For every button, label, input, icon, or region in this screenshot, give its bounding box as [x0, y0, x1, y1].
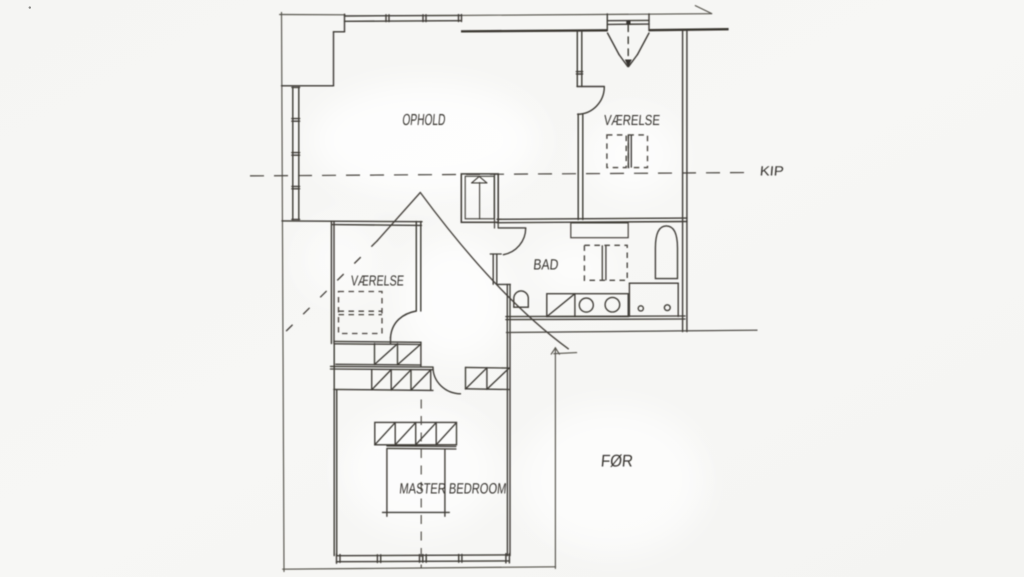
- svg-text:BAD: BAD: [533, 257, 560, 274]
- svg-text:OPHOLD: OPHOLD: [402, 111, 447, 129]
- svg-text:VÆRELSE: VÆRELSE: [350, 274, 405, 290]
- svg-text:FØR: FØR: [600, 452, 634, 471]
- svg-text:KIP: KIP: [759, 164, 784, 179]
- svg-text:MASTER BEDROOM: MASTER BEDROOM: [399, 481, 507, 498]
- svg-text:VÆRELSE: VÆRELSE: [603, 113, 661, 129]
